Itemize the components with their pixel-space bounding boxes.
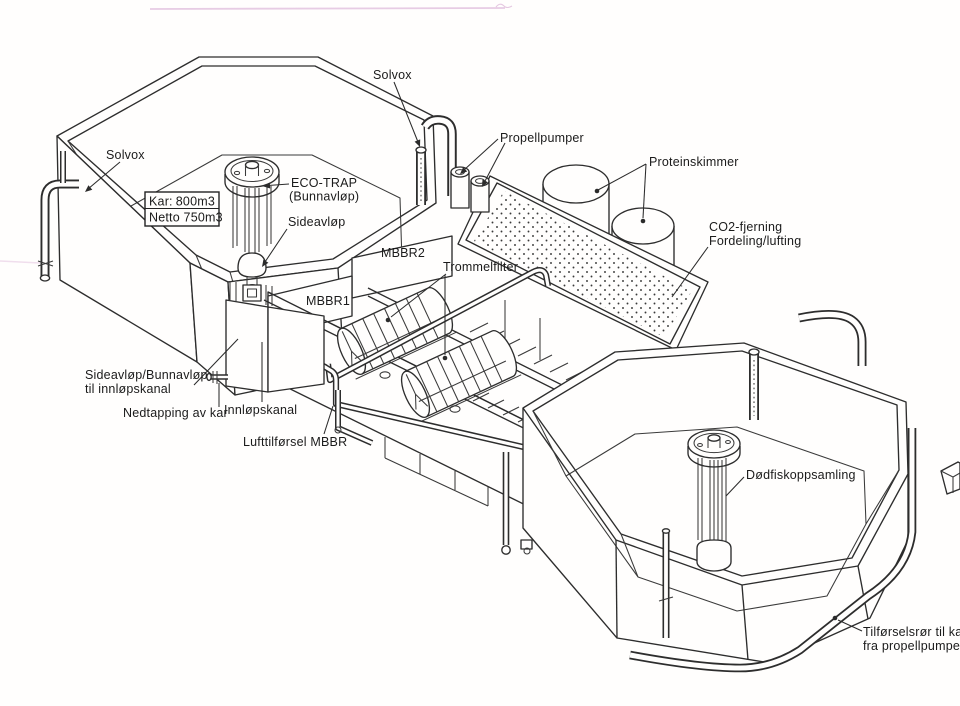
diagram-page: Kar: 800m3 Netto 750m3 [0, 0, 960, 706]
right-tank-inlet-elbow [799, 314, 862, 366]
propeller-pumps [451, 167, 489, 212]
sideavlop-dome [238, 253, 266, 277]
label-mbbr1-text: MBBR1 [306, 294, 350, 308]
connector-valve [502, 546, 510, 554]
solvox-pipe-left-cap [40, 275, 49, 281]
dodfisk-cup [697, 540, 731, 571]
eco-trap-center-inlet [246, 161, 259, 168]
label-sideavlop-bunnavlop-text-2: til innløpskanal [85, 382, 171, 396]
label-dodfiskoppsamling-text: Dødfiskoppsamling [746, 468, 856, 482]
wall-valve-fitting [521, 540, 532, 554]
right-tank [521, 314, 912, 668]
label-mbbr1: MBBR1 [306, 294, 350, 308]
tank-volume-box: Kar: 800m3 Netto 750m3 [145, 192, 223, 226]
label-nedtapping-text: Nedtapping av kar [123, 406, 228, 420]
basin-tank-connector-pipe [502, 452, 510, 554]
label-solvox-top-text: Solvox [373, 68, 412, 82]
inlet-gate [243, 285, 261, 301]
scan-squiggle [496, 4, 512, 7]
label-trommelfilter-text: Trommelfilter [443, 260, 518, 274]
label-innlopskanal-text: Innløpskanal [224, 403, 297, 417]
label-eco-trap-text-1: ECO-TRAP [291, 176, 357, 190]
label-tilforselsror-text-1: Tilførselsrør til kar [863, 625, 960, 639]
label-co2-text-1: CO2-fjerning [709, 220, 782, 234]
label-sideavlop-bunnavlop-text-1: Sideavløp/Bunnavløp [85, 368, 208, 382]
diffuser-cap [749, 349, 759, 355]
solvox-diffuser-cap [416, 147, 426, 153]
cutoff-box [941, 462, 960, 494]
label-propellpumper-text: Propellpumper [500, 131, 584, 145]
volume-kar-prefix: Kar: [149, 195, 173, 209]
inlet-channel-side [268, 307, 324, 392]
label-proteinskimmer: Proteinskimmer [595, 155, 739, 223]
label-lufttilforsel-text: Lufttilførsel MBBR [243, 435, 347, 449]
volume-netto: Netto 750m3 [149, 211, 223, 225]
label-tilforselsror-text-2: fra propellpumper [863, 639, 960, 653]
right-tank-diffuser-pipe [749, 349, 759, 420]
label-proteinskimmer-text: Proteinskimmer [649, 155, 739, 169]
dodfisk-center-inlet [708, 435, 720, 441]
label-mbbr2-text: MBBR2 [381, 246, 425, 260]
volume-kar-value: 800m3 [176, 195, 215, 209]
label-eco-trap-text-2: (Bunnavløp) [289, 190, 359, 204]
skimmer-1-top [543, 165, 609, 203]
scan-line-top [150, 8, 505, 9]
front-pipe-cap [662, 529, 669, 533]
label-co2-text-2: Fordeling/lufting [709, 234, 801, 248]
label-mbbr2: MBBR2 [381, 246, 425, 260]
scan-line-left [0, 261, 40, 263]
label-sideavlop-text: Sideavløp [288, 215, 345, 229]
label-solvox-left-text: Solvox [106, 148, 145, 162]
treatment-plant-diagram: Kar: 800m3 Netto 750m3 [0, 0, 960, 706]
